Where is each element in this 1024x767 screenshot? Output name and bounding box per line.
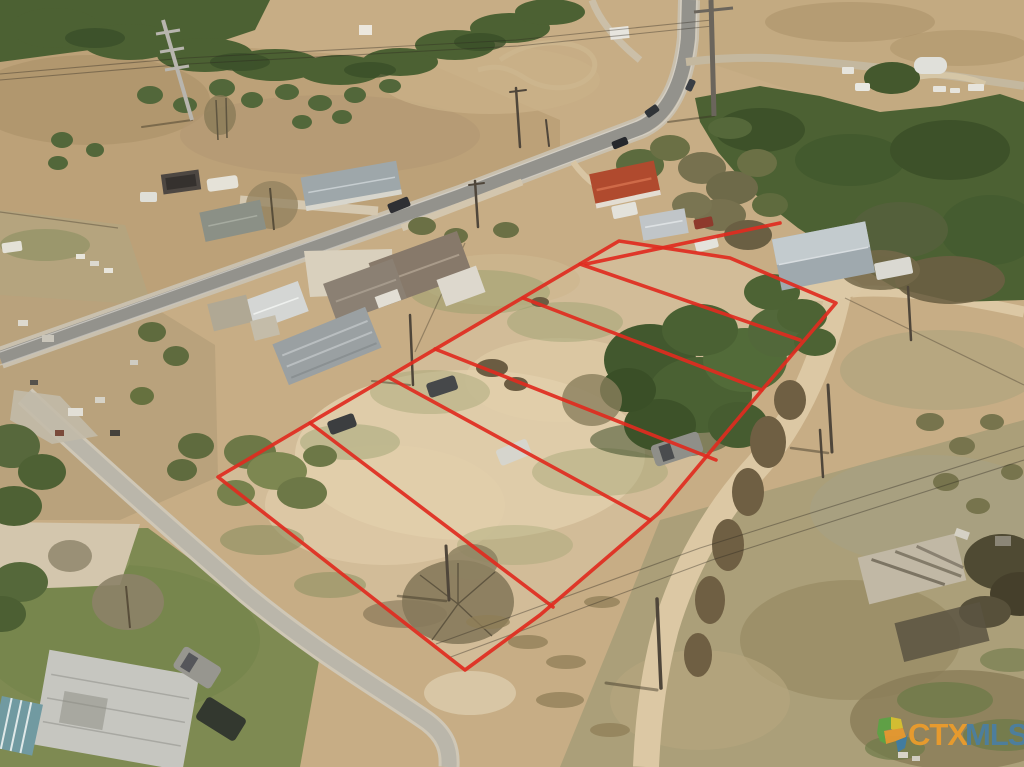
white-pickup-farm bbox=[855, 83, 870, 91]
white-van-yard bbox=[140, 192, 157, 202]
watermark-mls: MLS bbox=[965, 717, 1024, 752]
small-white-house bbox=[609, 26, 629, 40]
watermark-ctx: CTX bbox=[908, 717, 968, 752]
quonset-hut bbox=[914, 57, 947, 74]
aerial-photo: CTX MLS bbox=[0, 0, 1024, 767]
listing-photo: CTX MLS bbox=[0, 0, 1024, 767]
yard-tree bbox=[864, 62, 920, 94]
road-apron bbox=[424, 671, 516, 715]
tiny-white-house bbox=[359, 25, 372, 35]
ctxmls-watermark: CTX MLS bbox=[877, 717, 1024, 752]
